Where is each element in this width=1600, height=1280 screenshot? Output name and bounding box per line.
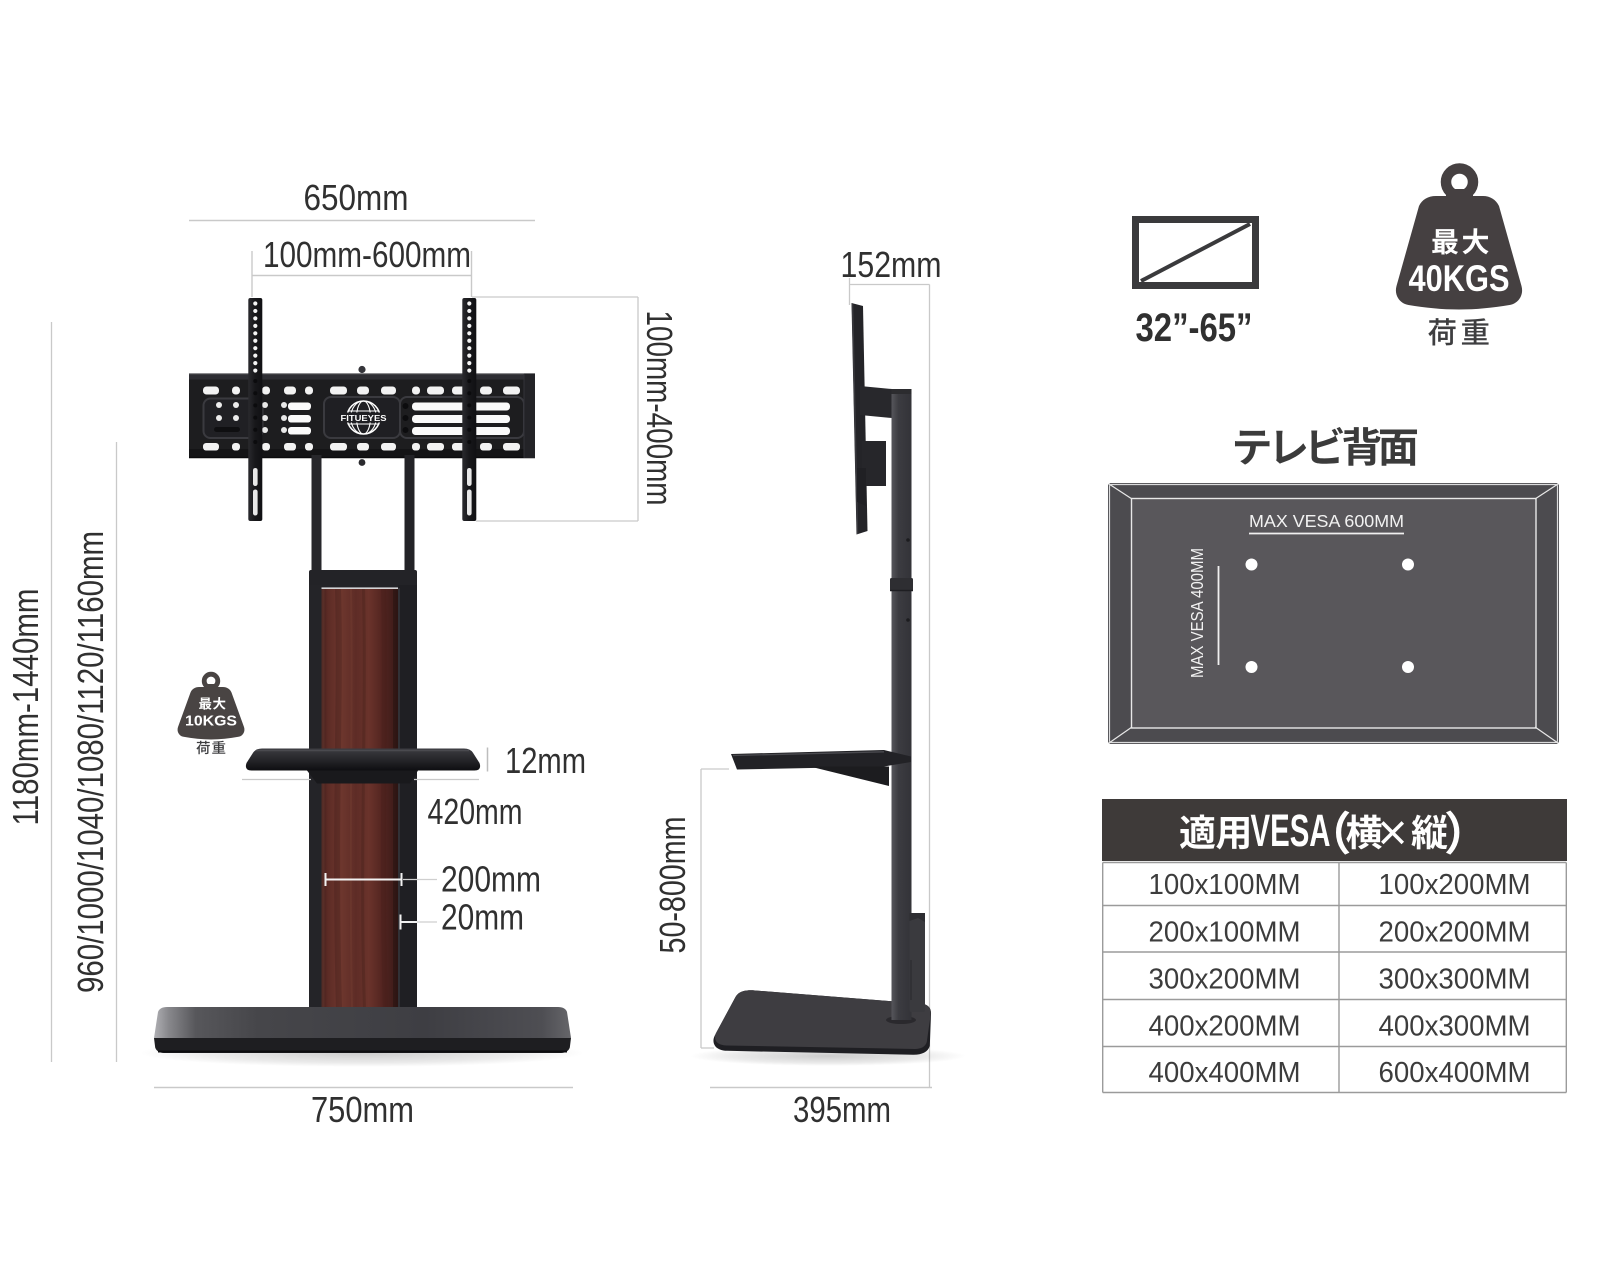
svg-text:50-800mm: 50-800mm [652,817,693,954]
svg-text:200x100MM: 200x100MM [1149,917,1301,949]
svg-text:600x400MM: 600x400MM [1379,1057,1531,1089]
svg-text:MAX VESA 400MM: MAX VESA 400MM [1187,548,1207,678]
svg-text:300x200MM: 300x200MM [1149,964,1301,996]
svg-text:MAX VESA 600MM: MAX VESA 600MM [1249,511,1404,531]
svg-text:200mm: 200mm [441,859,541,900]
svg-text:20mm: 20mm [441,897,524,938]
svg-text:395mm: 395mm [793,1089,891,1130]
svg-text:FITUEYES: FITUEYES [341,413,387,423]
svg-text:12mm: 12mm [505,740,586,781]
svg-text:100mm-400mm: 100mm-400mm [639,311,680,506]
svg-text:300x300MM: 300x300MM [1379,964,1531,996]
svg-text:100mm-600mm: 100mm-600mm [263,234,471,275]
svg-text:960/1000/1040/1080/1120/1160mm: 960/1000/1040/1080/1120/1160mm [70,531,111,993]
svg-text:40KGS: 40KGS [1409,258,1510,299]
svg-text:400x300MM: 400x300MM [1379,1011,1531,1043]
svg-text:1180mm-1440mm: 1180mm-1440mm [5,589,46,826]
svg-text:VESA: VESA [1251,805,1331,856]
svg-text:400x200MM: 400x200MM [1149,1011,1301,1043]
svg-text:100x100MM: 100x100MM [1149,869,1301,901]
svg-text:152mm: 152mm [841,244,942,285]
svg-text:100x200MM: 100x200MM [1379,869,1531,901]
svg-text:32”-65”: 32”-65” [1136,306,1253,350]
svg-text:750mm: 750mm [311,1089,414,1130]
svg-text:400x400MM: 400x400MM [1149,1057,1301,1089]
svg-text:420mm: 420mm [428,791,523,832]
svg-text:650mm: 650mm [304,177,409,218]
svg-text:10KGS: 10KGS [185,713,237,730]
svg-text:200x200MM: 200x200MM [1379,917,1531,949]
